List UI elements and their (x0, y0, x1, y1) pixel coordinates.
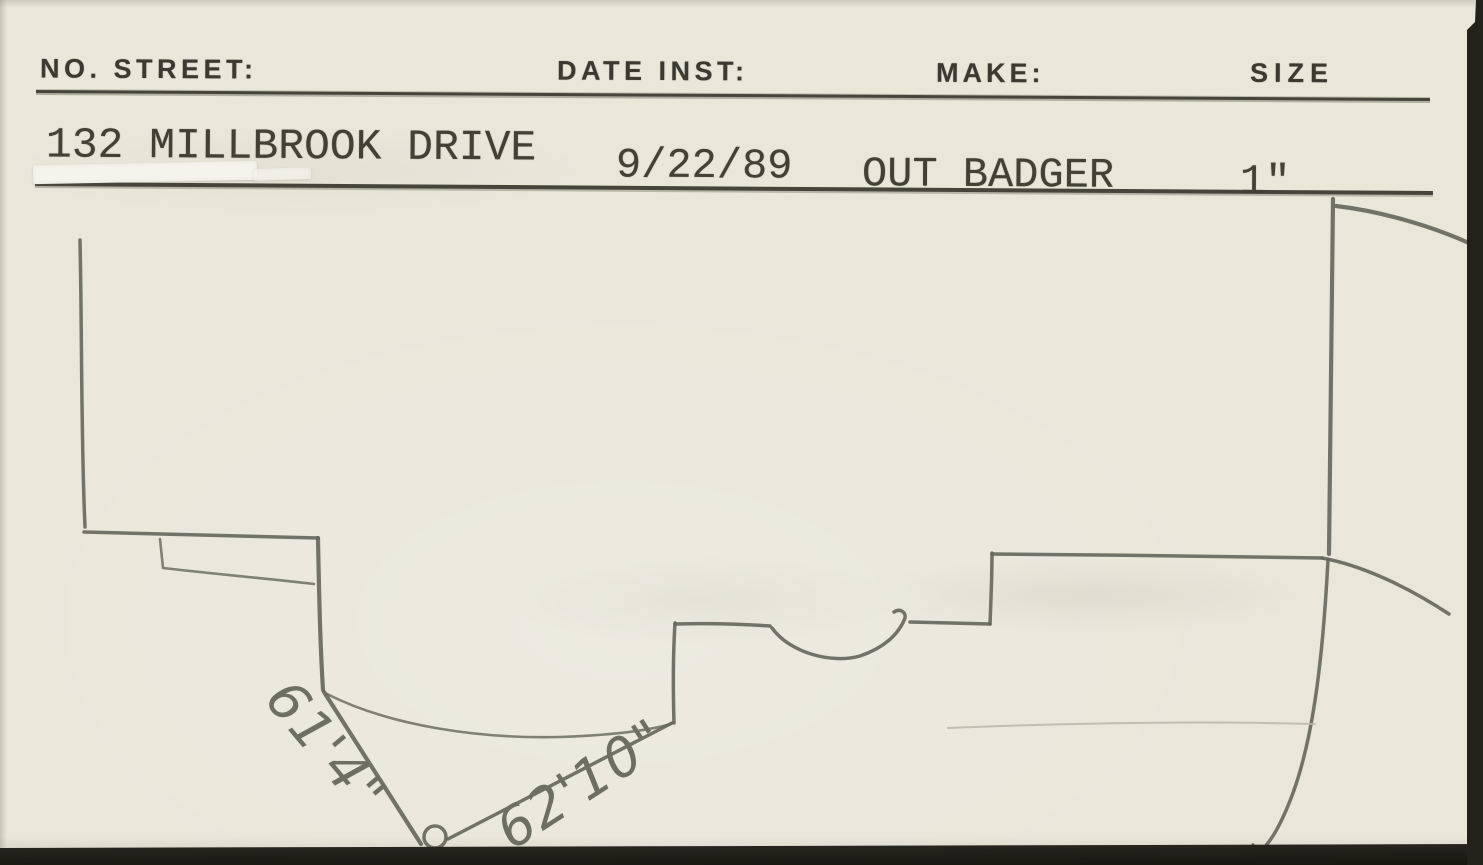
scan-bottom-edge (0, 844, 1483, 865)
meter-point-circle (424, 826, 446, 848)
measurement-label-62-10: 62'10" (485, 706, 678, 862)
faint-guide-line (948, 723, 1315, 728)
left-top-horizontal-line (84, 532, 318, 538)
left-inner-wall-line (318, 538, 323, 690)
middle-top-left-line (675, 624, 770, 626)
left-step-line (160, 539, 314, 584)
middle-left-wall-line (673, 623, 675, 723)
right-long-horizontal-line (992, 554, 1322, 558)
right-step-wall-line (990, 553, 992, 624)
right-corner-curve (1322, 558, 1449, 614)
right-vertical-line (1329, 199, 1333, 554)
scan-right-edge (1467, 0, 1483, 865)
middle-top-right-line (910, 622, 990, 624)
top-right-curve (1336, 206, 1471, 244)
driveway-dip-curve (772, 610, 905, 658)
plot-sketch: 61'4" 62'10" (0, 0, 1483, 865)
left-wall-line (80, 240, 85, 527)
right-long-curve (1252, 560, 1328, 853)
measurement-label-61-4: 61'4" (253, 668, 399, 826)
service-record-card: NO. STREET: DATE INST: MAKE: SIZE 132 MI… (0, 0, 1483, 865)
